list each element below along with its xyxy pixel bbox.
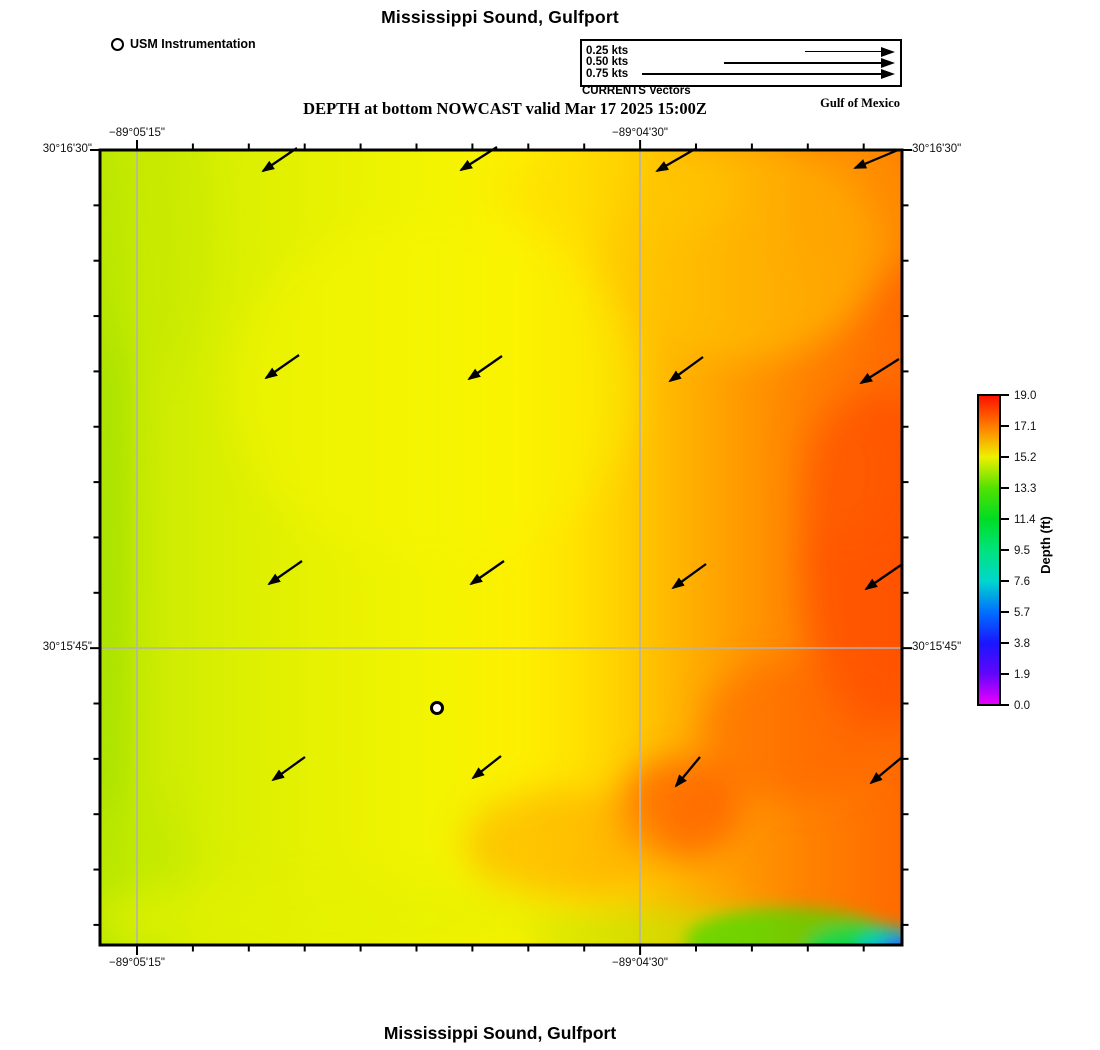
currents-vector-legend: 0.25 kts0.50 kts0.75 kts <box>580 39 902 87</box>
page: { "header": { "title": "Mississippi Soun… <box>0 0 1100 1050</box>
colorbar-tick-label: 3.8 <box>1014 638 1030 650</box>
lon-tick-label-top: −89°05'15" <box>109 127 165 139</box>
colorbar-tick-label: 0.0 <box>1014 700 1030 712</box>
legend-arrowhead-icon <box>881 69 895 79</box>
lat-tick-label-right: 30°16'30" <box>912 143 961 155</box>
colorbar-tick-label: 5.7 <box>1014 607 1030 619</box>
legend-arrowhead-icon <box>881 58 895 68</box>
legend-vector-line <box>724 62 887 64</box>
legend-speed-label: 0.50 kts <box>586 57 628 68</box>
lon-tick-label-bottom: −89°04'30" <box>612 957 668 969</box>
page-title: Mississippi Sound, Gulfport <box>0 7 1000 28</box>
depth-map <box>100 150 902 945</box>
legend-speed-label: 0.75 kts <box>586 69 628 80</box>
region-label: Gulf of Mexico <box>702 96 900 111</box>
station-marker <box>432 703 443 714</box>
legend-arrowhead-icon <box>881 47 895 57</box>
bottom-title: Mississippi Sound, Gulfport <box>0 1023 1000 1044</box>
colorbar-tick-label: 7.6 <box>1014 576 1030 588</box>
colorbar-tick-label: 13.3 <box>1014 483 1036 495</box>
colorbar-axis-label: Depth (ft) <box>1038 516 1053 574</box>
colorbar-tick-label: 19.0 <box>1014 390 1036 402</box>
colorbar-gradient-bar <box>978 395 1000 705</box>
depth-field <box>80 90 953 972</box>
open-circle-marker-icon <box>111 38 124 51</box>
colorbar-tick-label: 11.4 <box>1014 514 1036 526</box>
colorbar-tick-label: 9.5 <box>1014 545 1030 557</box>
instrumentation-legend-label: USM Instrumentation <box>130 37 256 51</box>
lat-tick-label-left: 30°15'45" <box>43 641 92 653</box>
legend-vector-line <box>642 73 887 75</box>
lon-tick-label-top: −89°04'30" <box>612 127 668 139</box>
colorbar-tick-labels: 19.017.115.213.311.49.57.65.73.81.90.0 <box>1000 390 1036 712</box>
colorbar: 19.017.115.213.311.49.57.65.73.81.90.0 D… <box>955 380 1100 730</box>
colorbar-tick-label: 17.1 <box>1014 421 1036 433</box>
lon-tick-label-bottom: −89°05'15" <box>109 957 165 969</box>
colorbar-tick-label: 1.9 <box>1014 669 1030 681</box>
lat-tick-label-left: 30°16'30" <box>43 143 92 155</box>
currents-legend-caption: CURRENTS Vectors <box>582 85 691 97</box>
lat-tick-label-right: 30°15'45" <box>912 641 961 653</box>
colorbar-tick-label: 15.2 <box>1014 452 1036 464</box>
legend-vector-line <box>805 51 887 53</box>
